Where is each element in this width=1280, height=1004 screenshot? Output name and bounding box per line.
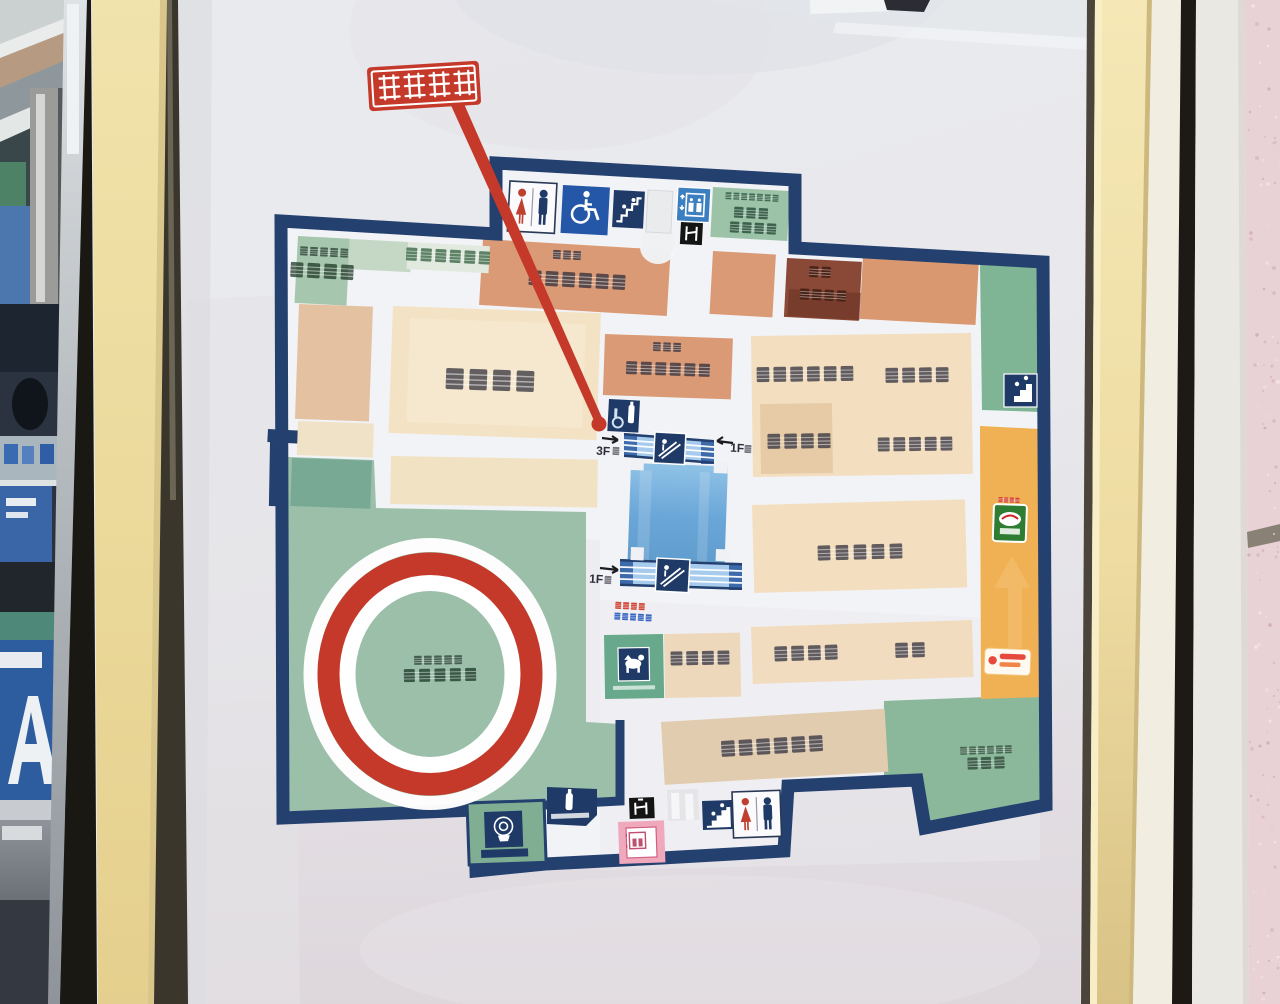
svg-text:3F: 3F — [596, 444, 611, 459]
svg-text:1F: 1F — [589, 572, 604, 587]
